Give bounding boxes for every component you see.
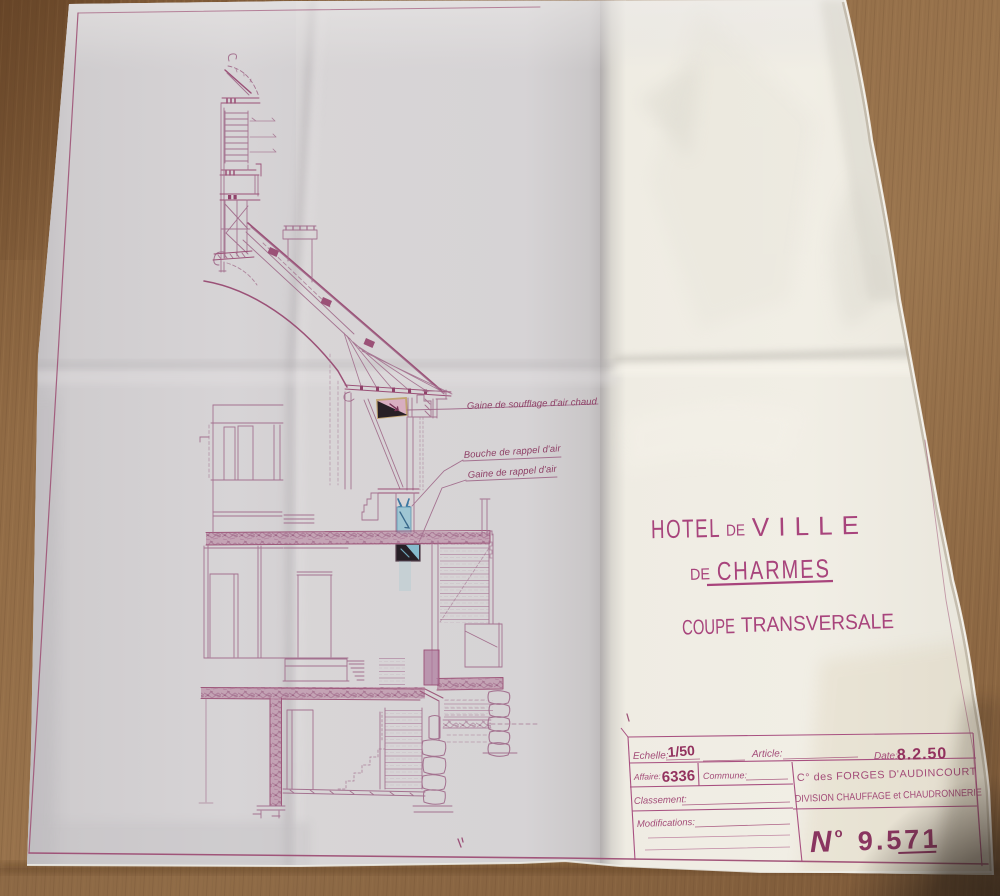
svg-text:HOTEL: HOTEL [651,513,722,544]
svg-text:VILLE: VILLE [752,510,866,542]
svg-text:DE: DE [726,522,745,539]
